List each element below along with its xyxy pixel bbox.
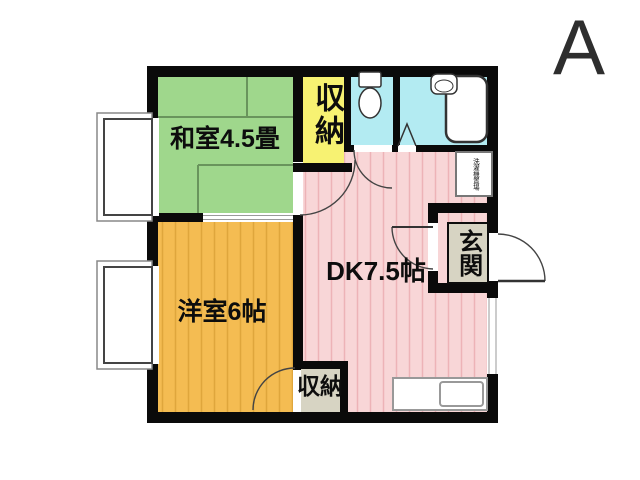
wall-toilet-left xyxy=(344,66,351,152)
washitsu-label: 和室4.5畳 xyxy=(156,126,294,152)
floor-plan: 和室4.5畳 洋室6帖 DK7.5帖 収納 収納 玄関 洗濯機置場 A xyxy=(0,0,640,480)
toilet-door-opening xyxy=(354,145,392,152)
bay-window-washitsu xyxy=(97,113,152,221)
yoshitsu-label: 洋室6帖 xyxy=(151,299,293,325)
front-door-arc xyxy=(498,234,545,281)
laundry-box-label: 洗濯機置場 xyxy=(458,153,490,195)
kitchen-counter xyxy=(393,378,487,410)
bay-window-yoshitsu xyxy=(97,261,152,369)
wall-center-upper xyxy=(293,66,303,162)
dk-label: DK7.5帖 xyxy=(303,258,449,285)
sink-icon xyxy=(431,74,457,94)
floor-plan-drawing xyxy=(0,0,640,480)
toilet-icon xyxy=(359,72,381,118)
wall-bottom xyxy=(147,412,498,423)
plan-variant-letter: A xyxy=(553,8,605,86)
wall-center-lower xyxy=(293,215,303,370)
bath-door-opening xyxy=(398,145,416,152)
closet-top-label: 収納 xyxy=(306,82,342,168)
genkan-label-box: 玄関 xyxy=(447,222,489,284)
sliding-door-between-rooms xyxy=(203,216,293,220)
kitchen-sink xyxy=(440,382,483,406)
closet-bottom-label: 収納 xyxy=(290,374,350,398)
wall-genkan-top xyxy=(428,203,498,213)
wall-toilet-bath-divider xyxy=(393,66,400,152)
